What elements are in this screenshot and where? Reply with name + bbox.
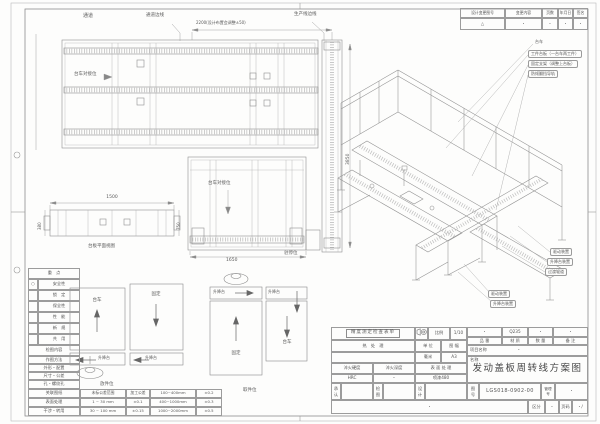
drawing-title: 发动盖板周转线方案图	[472, 364, 582, 374]
tolerance-cell: 1 ~ 30 mm	[80, 398, 126, 407]
take-position-label: 取件位	[243, 388, 257, 393]
callout-lift-unit-left: 升降台装置	[490, 300, 516, 308]
drawing-name-cell: 名称 发动盖板周转线方案图	[467, 356, 588, 383]
design-signature	[425, 383, 467, 400]
check-key-label: 性 能	[38, 312, 80, 323]
put-position-label: 放件位	[100, 382, 114, 387]
production-edge-label: 生产线边线	[294, 12, 317, 17]
callout-fixed-bracket: 固定支架（调整上台板）	[528, 60, 578, 68]
revision-col-header: 页数	[542, 8, 558, 18]
class-label: 区分	[528, 400, 545, 414]
remark-value: ・	[553, 327, 588, 337]
quench-depth-label: 淬火深度	[373, 363, 415, 374]
project-name-value: ・	[517, 348, 521, 353]
quench-hardness-value: HRC	[331, 374, 373, 383]
check-signature	[383, 383, 415, 400]
revision-col-header: 年月日	[558, 8, 573, 18]
production-line-conveyor	[322, 40, 342, 252]
drawing-no-label: 图号	[467, 383, 479, 400]
callout-transition-roller: 过渡辊道	[545, 268, 567, 276]
park-position-label: 驻停位	[284, 251, 298, 256]
check-key-label: 安全性	[38, 279, 80, 290]
check-key-mark	[28, 323, 38, 334]
check-key-label: 保全性	[38, 301, 80, 312]
revision-col-header: 变更内容	[505, 8, 542, 18]
page-value: ・/	[572, 400, 588, 414]
cart-dock-label-2: 台车对接位	[208, 181, 231, 186]
dim-2200-label: 2200(设计布置会调整±50)	[196, 21, 246, 26]
check-content-row: 孔・螺纹孔	[28, 380, 80, 389]
title-block: 精度测定检查表单 比例 1/10 热 处 理 单 位 图 幅 毫米 A3 淬火硬…	[331, 327, 588, 414]
revision-cell: ・	[542, 18, 558, 30]
material-label: 材 质	[502, 337, 528, 345]
tolerance-cell: 未标公差范围	[80, 389, 126, 398]
mgmt-no-value: ・	[555, 383, 588, 400]
check-key-header: 重 点	[28, 268, 80, 279]
station-fixed-label: 固定	[143, 292, 169, 297]
qty-value: ・	[528, 327, 553, 337]
station-lift-label: 升降台	[145, 356, 157, 361]
scale-value: 1/10	[450, 327, 467, 340]
class-value: ・	[545, 400, 559, 414]
tolerance-cell: ±0.15	[126, 407, 150, 416]
material-value: Q235	[502, 327, 528, 337]
bottom-note-cell: ・	[331, 400, 528, 414]
revision-col-header: 签名	[573, 8, 588, 18]
tolerance-cell: 1000~2000mm	[150, 407, 196, 416]
approve-label: 承认	[331, 383, 341, 400]
drawing-sheet: 通道 通道边线 2200(设计布置会调整±50) 生产线边线 台车对接位 385…	[0, 0, 600, 424]
check-content-row: 关联图纸	[28, 389, 80, 398]
unit-value: 毫米	[415, 352, 441, 363]
dim-750-label: 750	[177, 222, 182, 230]
callout-anti-tip-rail: 防倾翻挡导轨	[528, 70, 558, 78]
approve-signature	[341, 383, 373, 400]
callout-drive-unit-left: 驱动装置	[488, 290, 510, 298]
revision-cell: ・	[573, 18, 588, 30]
projection-symbol-cell	[415, 327, 428, 340]
quench-depth-value: ・	[373, 374, 415, 383]
check-key-mark	[28, 290, 38, 301]
passage-label: 通道	[74, 14, 102, 20]
check-content-row: 尺寸・公差	[28, 372, 80, 380]
check-content-row: 外形・配置	[28, 364, 80, 372]
scale-label: 比例	[428, 327, 450, 340]
tolerance-cell: 30 ~ 100 mm	[80, 407, 126, 416]
pallet-plan-view	[44, 210, 180, 236]
plan-view-1	[62, 40, 318, 148]
surface-treatment-label: 表 面 处 理	[415, 363, 467, 374]
drawing-name-label: 名称	[470, 358, 478, 363]
quench-hardness-label: 淬火硬度	[331, 363, 373, 374]
pallet-view-caption: 台板平面视图	[88, 244, 115, 249]
punch-hole-icon	[14, 152, 20, 158]
check-content-header: 检图内容	[28, 345, 80, 356]
dim-1500-label: 1500	[96, 195, 128, 200]
check-key-mark: ○	[28, 279, 38, 290]
check-key-label: 锁 定	[38, 290, 80, 301]
third-angle-projection-icon	[416, 328, 427, 336]
dim-380-label: 380	[38, 222, 43, 230]
isometric-view	[334, 70, 566, 300]
revision-col-header: 设计变更图号	[460, 8, 505, 18]
punch-hole-icon	[14, 267, 20, 273]
heat-treatment-value	[331, 352, 415, 363]
tolerance-cell: ±0.2	[196, 389, 222, 398]
callout-workpiece-plate: 工件台板（一台车两工件）	[528, 50, 582, 58]
check-key-mark	[28, 312, 38, 323]
operator-icon	[77, 368, 103, 379]
callout-leaders	[446, 44, 550, 302]
check-content-row: 作图方法	[28, 356, 80, 364]
passage-edge-label: 通道边线	[146, 13, 164, 18]
tolerance-cell: ±0.3	[196, 398, 222, 407]
remark-label: 备 注	[553, 337, 588, 345]
station-cart-label: 台车	[84, 298, 110, 303]
cart-dock-label: 台车对接位	[74, 72, 97, 77]
station-cart-label: 台车	[274, 340, 300, 345]
design-label: 设计	[415, 383, 425, 400]
check-content-row: 表面处理	[28, 398, 80, 407]
tolerance-cell: 400~1000mm	[150, 398, 196, 407]
plan-view-2	[188, 157, 320, 250]
station-lift-label: 升降台	[98, 356, 110, 361]
unit-label: 单 位	[415, 340, 441, 352]
dim-1650-label: 1650	[226, 258, 237, 263]
dimensions	[36, 22, 351, 258]
callout-cart: 台车	[535, 40, 543, 45]
station-lift-label: 升降台	[213, 290, 225, 295]
check-key-mark	[28, 301, 38, 312]
revision-cell: ・	[505, 18, 542, 30]
callout-lift-unit-right: 升降台装置	[547, 258, 573, 266]
tolerance-cell: 加工公差	[126, 389, 150, 398]
project-name-label: 项目名称	[470, 348, 487, 353]
part-no-label: 品 番	[467, 337, 502, 345]
mgmt-no-label: 管理号	[541, 383, 555, 400]
revision-cell: △	[460, 18, 505, 30]
station-lift-label: 升降台	[268, 290, 280, 295]
check-key-mark	[28, 334, 38, 345]
dim-3850-label: 3850	[346, 154, 351, 165]
accuracy-check-cell: 精度测定检查表单	[331, 327, 415, 340]
heat-treatment-label: 热 处 理	[331, 340, 415, 352]
callout-drive-unit-right: 驱动装置	[550, 248, 572, 256]
tolerance-cell: ±0.1	[126, 398, 150, 407]
page-label: 页码	[559, 400, 572, 414]
qty-label: 数 量	[528, 337, 553, 345]
revision-cell: ・	[558, 18, 573, 30]
tolerance-cell: ±0.5	[196, 407, 222, 416]
drawing-no-value: LGS018-0902-00	[479, 383, 541, 400]
check-key-label: 共 用	[38, 334, 80, 345]
accuracy-check-sheet-label: 精度测定检查表单	[346, 329, 400, 338]
surface-treatment-value: 喷漆480	[415, 374, 467, 383]
tolerance-cell: 100~400mm	[150, 389, 196, 398]
project-name-row: 项目名称 ・	[467, 345, 588, 356]
format-value: A3	[441, 352, 467, 363]
format-label: 图 幅	[441, 340, 467, 352]
check-key-label: 新 规	[38, 323, 80, 334]
check-label: 检图	[373, 383, 383, 400]
operator-icon	[224, 274, 248, 285]
part-no-value: ・	[467, 327, 502, 337]
station-fixed-label: 固定	[223, 351, 249, 356]
